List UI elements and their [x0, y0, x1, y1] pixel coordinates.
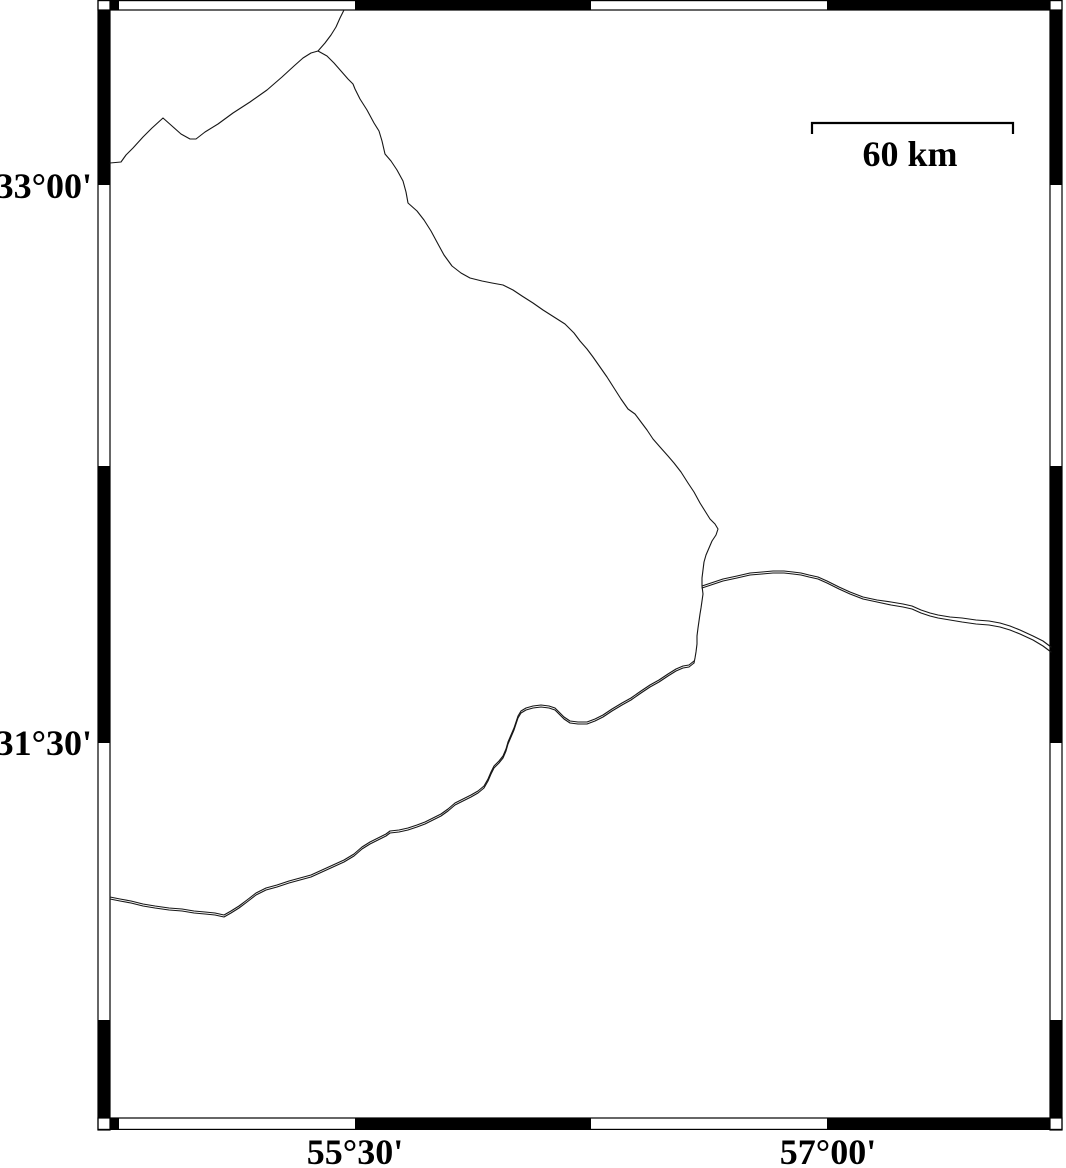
map-figure: 33°00' 31°30' 55°30' 57°00' 60 km — [0, 0, 1066, 1168]
latitude-label-31-30: 31°30' — [0, 723, 92, 763]
frame-corner-cell — [98, 0, 110, 10]
frame-right-black-segment — [1050, 10, 1062, 185]
frame-corner-cell — [98, 1118, 110, 1130]
latitude-label-33-00: 33°00' — [0, 166, 92, 206]
longitude-label-57-00: 57°00' — [780, 1132, 876, 1168]
frame-corner-cell — [1050, 1118, 1062, 1130]
frame-left-black-segment — [98, 10, 110, 185]
frame-corner-cell — [1050, 0, 1062, 10]
frame-top-black-segment — [110, 0, 119, 10]
frame-top-black-segment — [827, 0, 1050, 10]
boundary-southwest — [110, 663, 694, 917]
frame-right-black-segment — [1050, 466, 1062, 743]
frame-left-black-segment — [98, 1020, 110, 1118]
scale-bar-bracket — [812, 123, 1013, 134]
frame-bottom-black-segment — [355, 1118, 591, 1130]
frame-left-black-segment — [98, 466, 110, 743]
boundary-northwest — [110, 51, 718, 663]
frame-top-black-segment — [355, 0, 591, 10]
boundary-southwest-double — [110, 661, 694, 915]
longitude-label-55-30: 55°30' — [307, 1132, 403, 1168]
boundary-east-lower — [702, 573, 1051, 652]
frame-inner-outline — [110, 10, 1050, 1118]
scale-bar-label: 60 km — [862, 134, 957, 174]
boundary-north-spur — [318, 10, 344, 51]
frame-bottom-black-segment — [827, 1118, 1050, 1130]
frame-right-black-segment — [1050, 1020, 1062, 1118]
boundary-east-upper — [702, 571, 1051, 647]
map-canvas: 33°00' 31°30' 55°30' 57°00' 60 km — [0, 0, 1066, 1168]
frame-bottom-black-segment — [110, 1118, 119, 1130]
